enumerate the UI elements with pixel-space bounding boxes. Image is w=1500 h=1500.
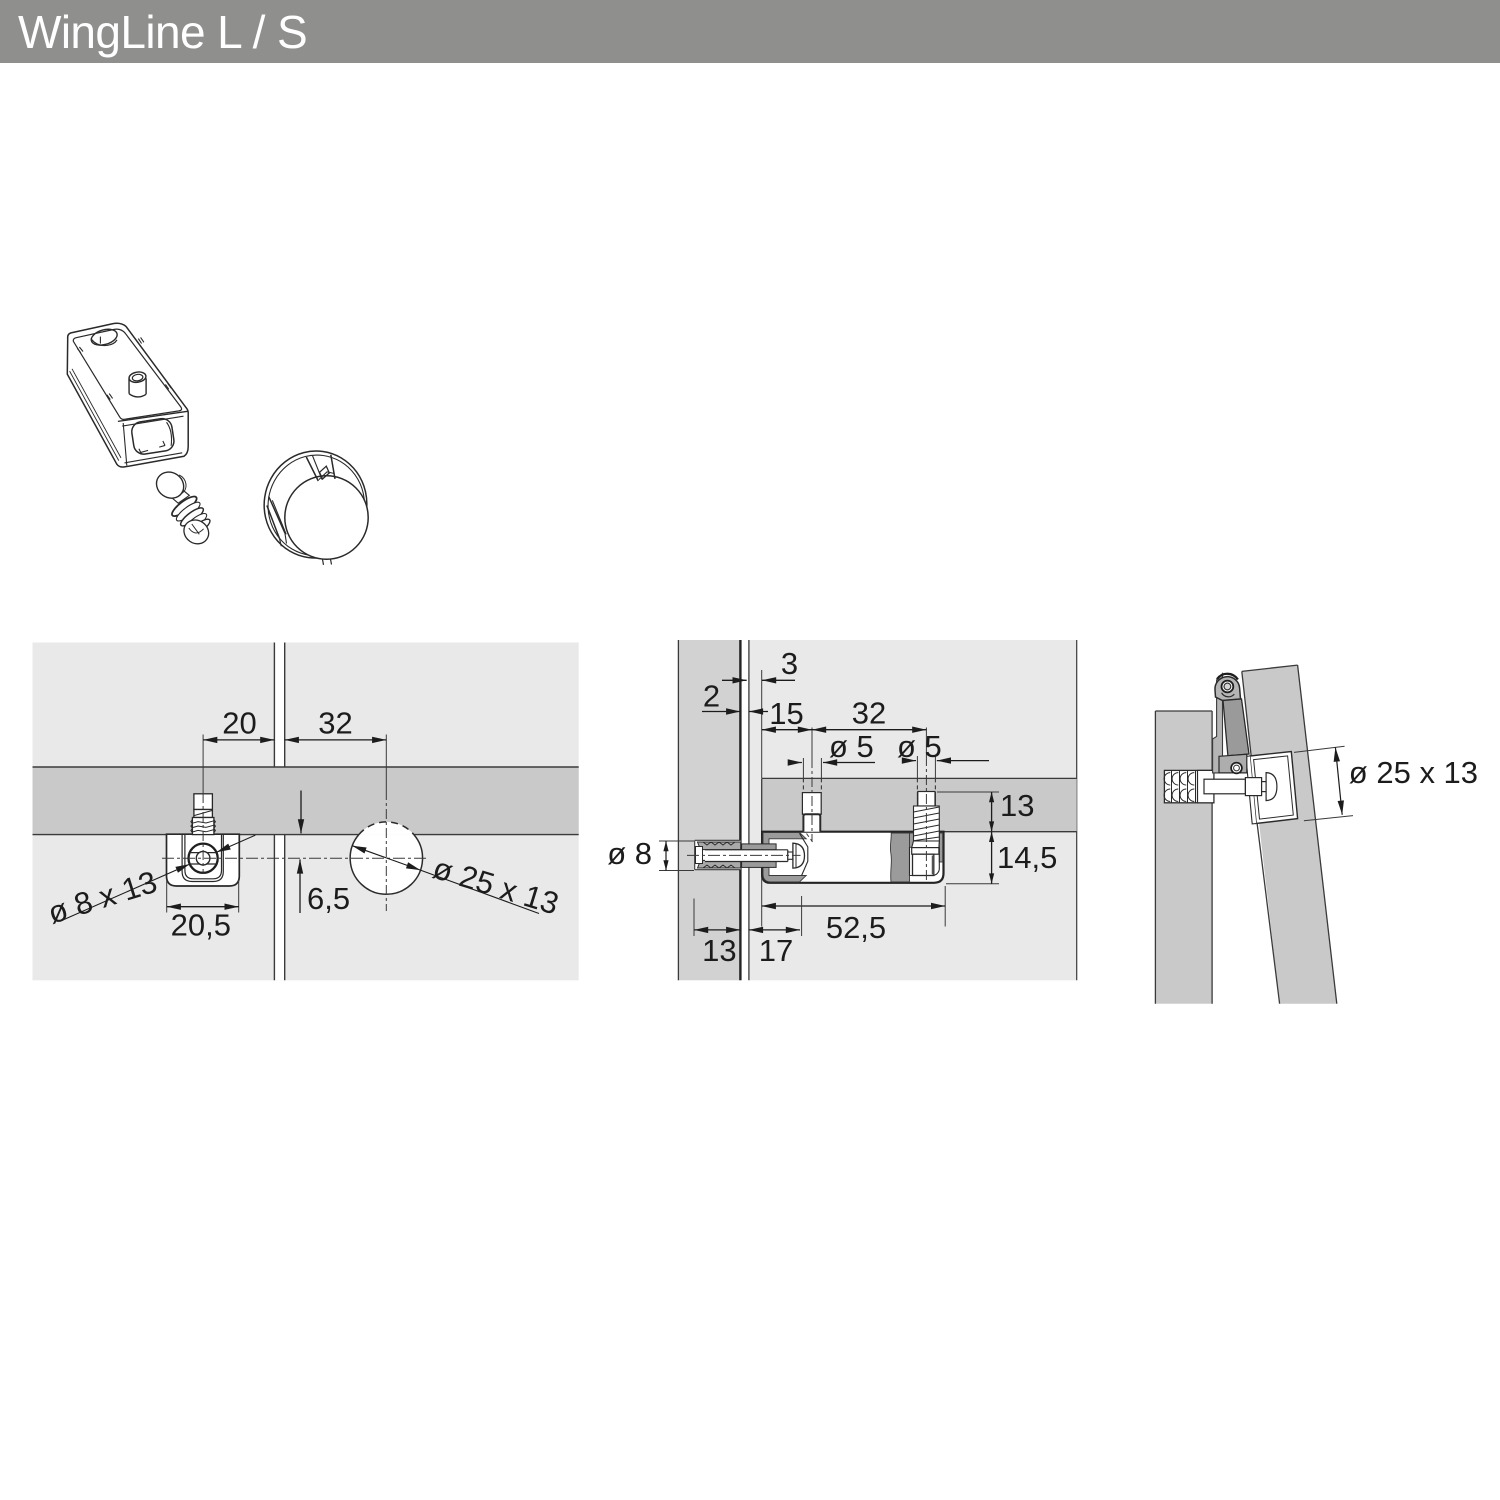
svg-text:3: 3: [781, 646, 798, 681]
svg-text:52,5: 52,5: [826, 910, 886, 945]
svg-text:32: 32: [852, 696, 886, 731]
svg-text:32: 32: [318, 706, 352, 741]
svg-text:ø 25 x 13: ø 25 x 13: [1349, 755, 1478, 790]
svg-text:17: 17: [759, 933, 793, 968]
svg-text:14,5: 14,5: [997, 840, 1057, 875]
svg-text:15: 15: [769, 696, 803, 731]
svg-text:20,5: 20,5: [171, 908, 231, 943]
svg-text:13: 13: [702, 933, 736, 968]
svg-text:ø 8: ø 8: [607, 836, 652, 871]
svg-text:ø 5: ø 5: [829, 729, 874, 764]
svg-text:6,5: 6,5: [307, 881, 350, 916]
svg-text:ø 5: ø 5: [897, 729, 942, 764]
svg-text:13: 13: [1000, 788, 1034, 823]
svg-text:2: 2: [703, 679, 720, 714]
svg-text:20: 20: [222, 706, 256, 741]
